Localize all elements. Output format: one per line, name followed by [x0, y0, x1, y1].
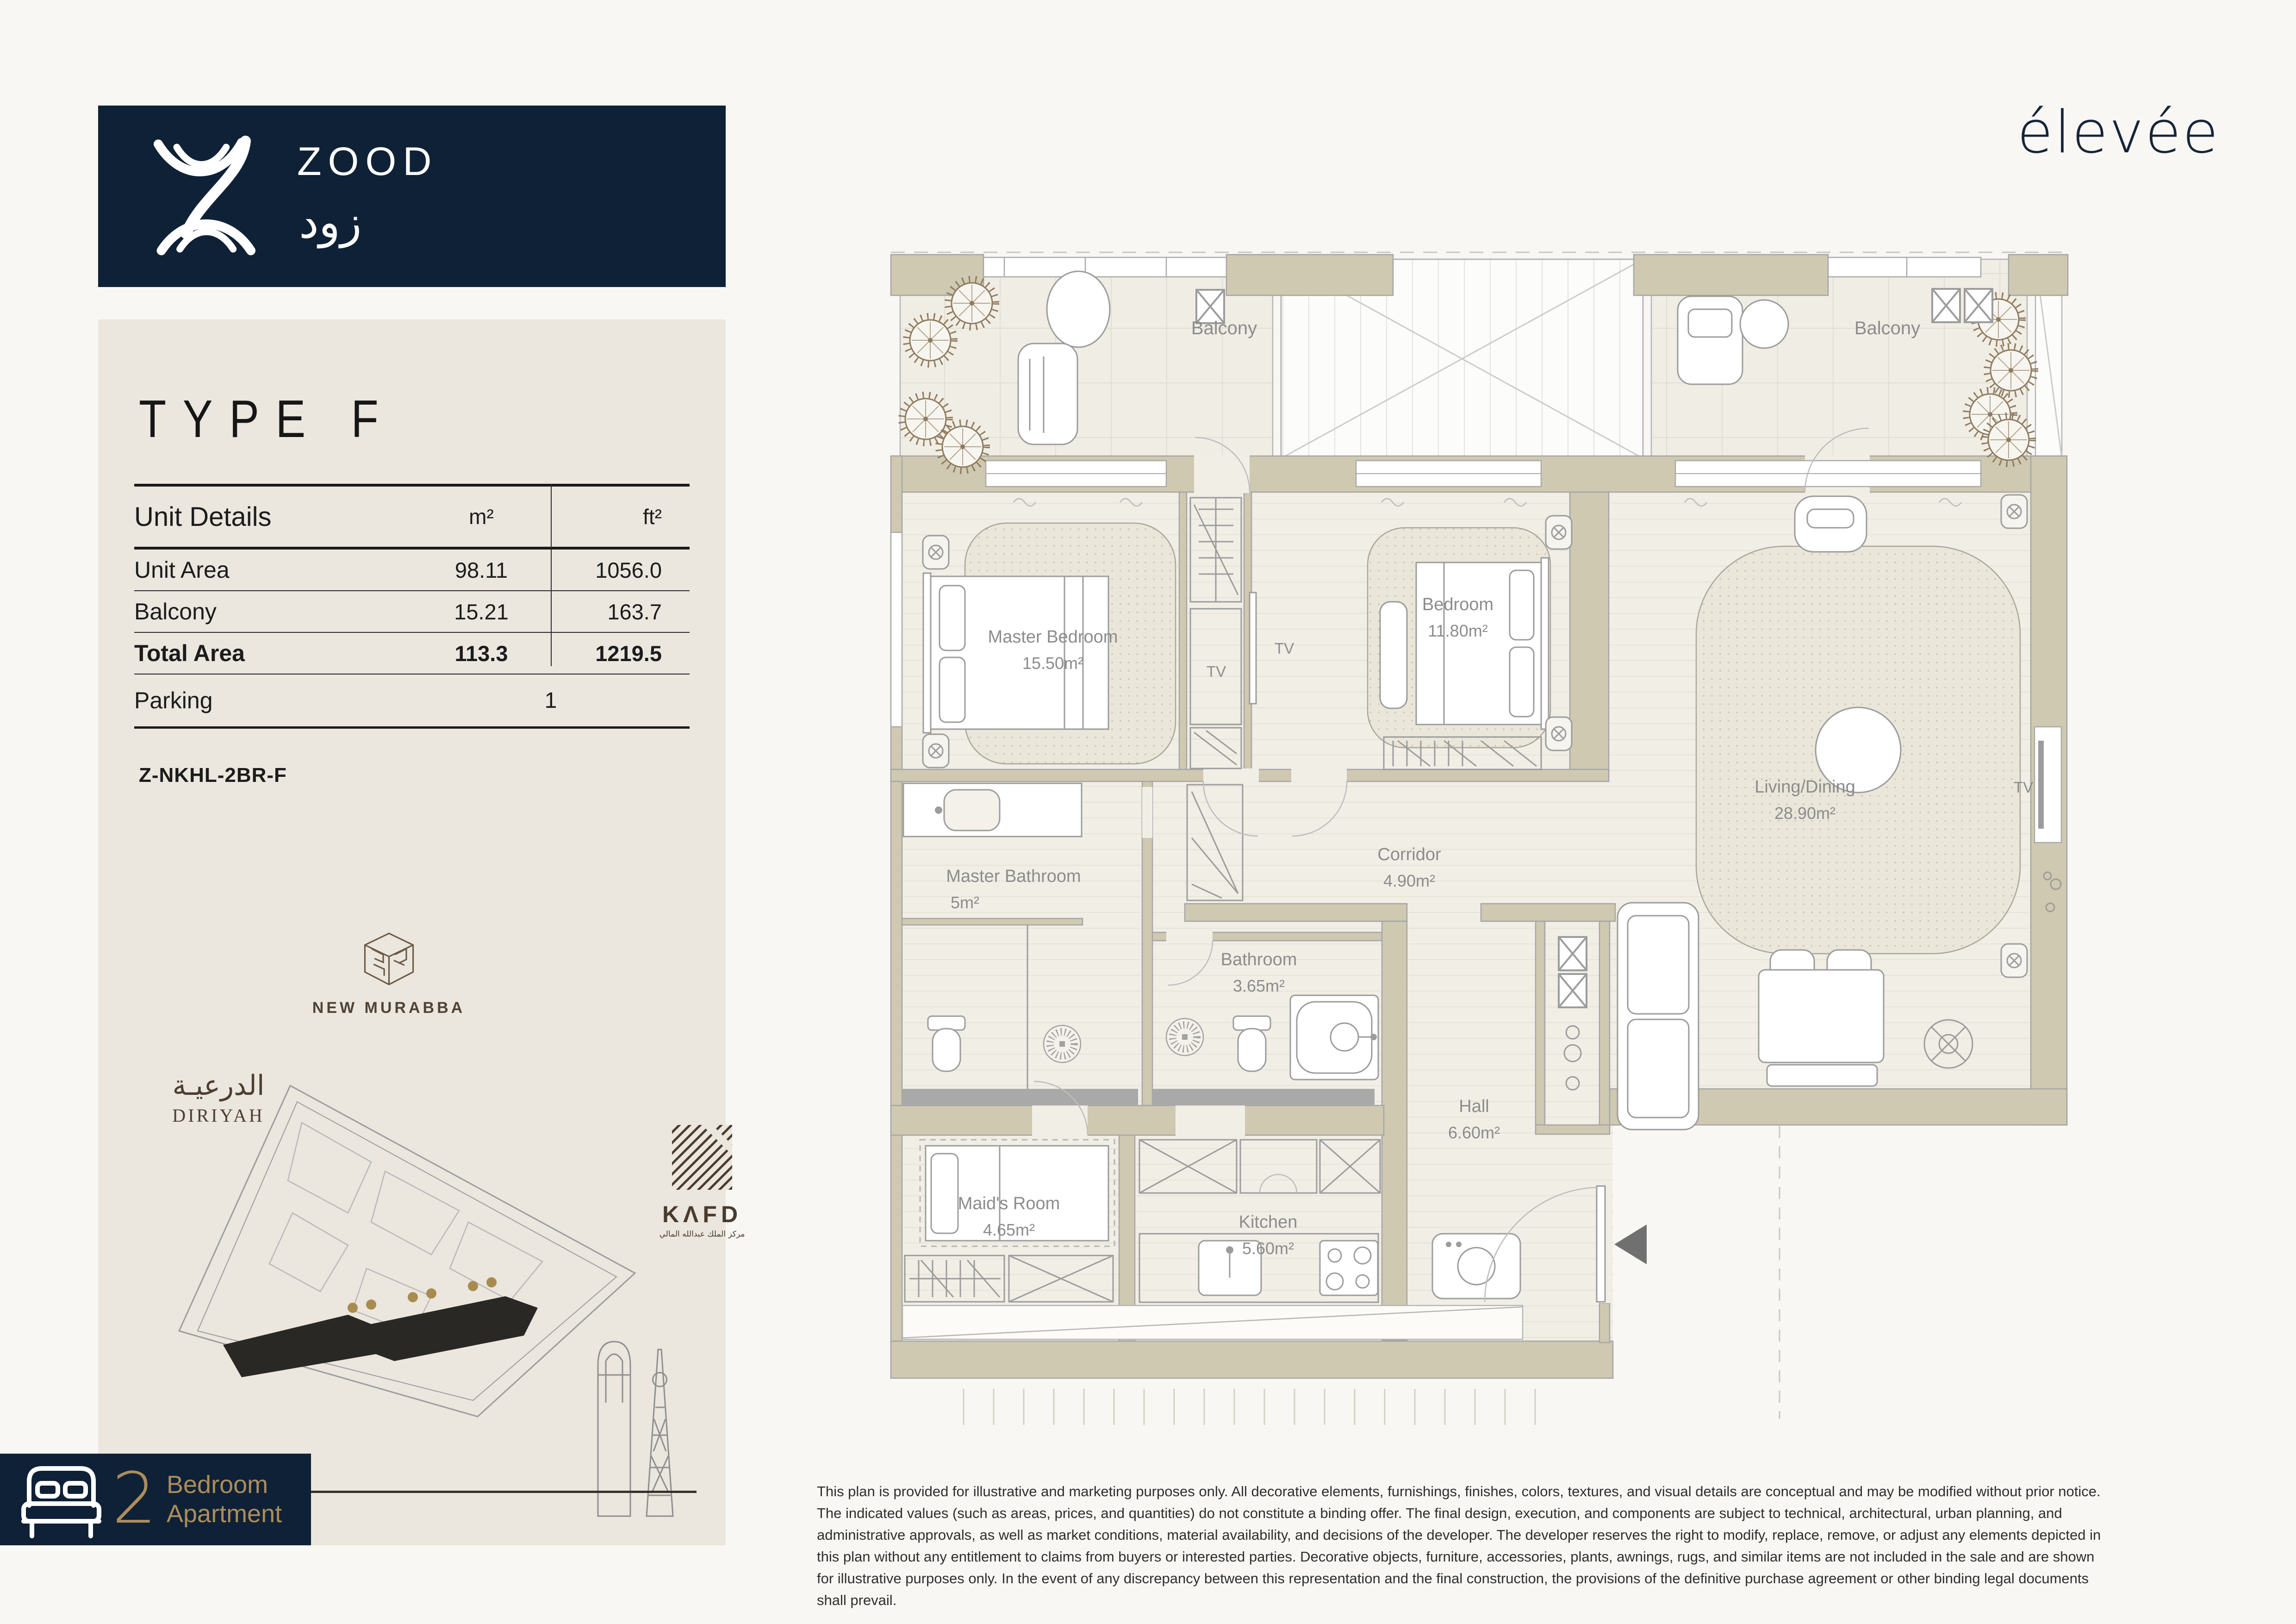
drain-box	[1965, 289, 1992, 322]
zood-wordmark-arabic: زود	[299, 196, 361, 248]
table-header-m2: m²	[412, 504, 551, 529]
room-label: Bathroom	[1221, 950, 1297, 969]
parking-value: 1	[412, 688, 690, 713]
row-ft2: 1219.5	[551, 641, 690, 666]
unit-info-panel: TYPE F Unit Details m² ft² Unit Area 98.…	[98, 319, 726, 1545]
bedroom-furniture	[1368, 516, 1572, 769]
table-header-ft2: ft²	[551, 504, 690, 529]
table-row-parking: Parking 1	[134, 675, 690, 729]
unit-details-table: Unit Details m² ft² Unit Area 98.11 1056…	[134, 484, 690, 729]
room-label: Hall	[1459, 1097, 1489, 1116]
table-header-label: Unit Details	[134, 501, 412, 532]
room-area: 5m²	[951, 893, 979, 912]
room-label: Bedroom	[1422, 595, 1493, 614]
row-m2: 15.21	[412, 599, 551, 625]
landmark-kafd: KΛFD مركز الملك عبدالله المالي	[637, 1123, 767, 1239]
project-footprint	[223, 1296, 538, 1377]
room-label: Master Bathroom	[946, 867, 1081, 886]
room-area: 5.60m²	[1242, 1239, 1294, 1258]
kafd-icon	[670, 1123, 734, 1192]
room-area: 4.90m²	[1383, 871, 1435, 890]
row-label: Unit Area	[134, 556, 412, 583]
unit-type-title: TYPE F	[139, 389, 395, 450]
room-label: Corridor	[1377, 845, 1441, 864]
grid-ticks	[951, 1389, 1557, 1425]
threshold	[902, 1089, 1138, 1106]
room-area: 28.90m²	[1774, 804, 1836, 823]
table-row-unit-area: Unit Area 98.11 1056.0	[134, 550, 690, 591]
room-area: 6.60m²	[1448, 1123, 1500, 1142]
room-area: 3.65m²	[1233, 976, 1285, 995]
row-m2: 113.3	[412, 641, 551, 666]
row-m2: 98.11	[412, 557, 551, 583]
room-label: Master Bedroom	[988, 627, 1118, 647]
new-murabba-label: NEW MURABBA	[278, 999, 500, 1017]
room-area: 15.50m²	[1022, 654, 1083, 673]
entrance-arrow-icon	[1614, 1224, 1647, 1264]
room-area: 11.80m²	[1428, 621, 1487, 640]
floor-plan: Master Bedroom 15.50m² TV TV Bedr	[879, 245, 2073, 1430]
badge-rule	[311, 1491, 697, 1493]
row-label: Balcony	[134, 598, 412, 625]
tv-label: TV	[1207, 663, 1226, 680]
site-plan-map	[154, 1074, 644, 1444]
table-row-balcony: Balcony 15.21 163.7	[134, 591, 690, 633]
badge-text: Bedroom Apartment	[167, 1470, 282, 1529]
row-ft2: 163.7	[551, 599, 690, 625]
threshold	[1152, 1089, 1375, 1106]
bed-icon	[12, 1459, 111, 1543]
zood-wordmark: ZOOD	[297, 139, 438, 185]
badge-line1: Bedroom	[167, 1470, 282, 1499]
row-label: Total Area	[134, 640, 412, 667]
room-label: Living/Dining	[1755, 777, 1855, 797]
floorplan-sheet: ZOOD زود élevée TYPE F Unit Details m² f…	[0, 0, 2296, 1624]
table-row-total-area: Total Area 113.3 1219.5	[134, 633, 690, 675]
kafd-label: KΛFD	[637, 1201, 767, 1228]
table-column-divider	[551, 484, 552, 666]
row-ft2: 1056.0	[551, 557, 690, 583]
unit-code: Z-NKHL-2BR-F	[139, 764, 287, 787]
badge-number: 2	[112, 1457, 157, 1539]
bedroom-count-badge: 2 Bedroom Apartment	[0, 1454, 311, 1545]
tv-label: TV	[1275, 640, 1294, 657]
balcony-right-label: Balcony	[1854, 318, 1920, 338]
new-murabba-cube-icon	[360, 931, 418, 988]
room-label: Maid's Room	[958, 1194, 1060, 1213]
disclaimer-text: This plan is provided for illustrative a…	[817, 1480, 2108, 1611]
zood-logo-box: ZOOD زود	[98, 106, 726, 287]
parking-label: Parking	[134, 687, 412, 714]
landmark-new-murabba: NEW MURABBA	[278, 931, 500, 1017]
badge-line2: Apartment	[167, 1499, 282, 1529]
room-area: 4.65m²	[983, 1220, 1035, 1239]
zood-wave-icon	[142, 129, 281, 268]
room-label: Kitchen	[1239, 1212, 1298, 1232]
balcony-left-label: Balcony	[1191, 318, 1257, 338]
kafd-label-arabic: مركز الملك عبدالله المالي	[637, 1230, 767, 1239]
elevee-logo: élevée	[2017, 98, 2220, 166]
tv-label: TV	[2014, 779, 2033, 796]
drain-box	[1932, 289, 1960, 322]
table-header-row: Unit Details m² ft²	[134, 484, 690, 550]
ramp-strip	[902, 1305, 1523, 1339]
